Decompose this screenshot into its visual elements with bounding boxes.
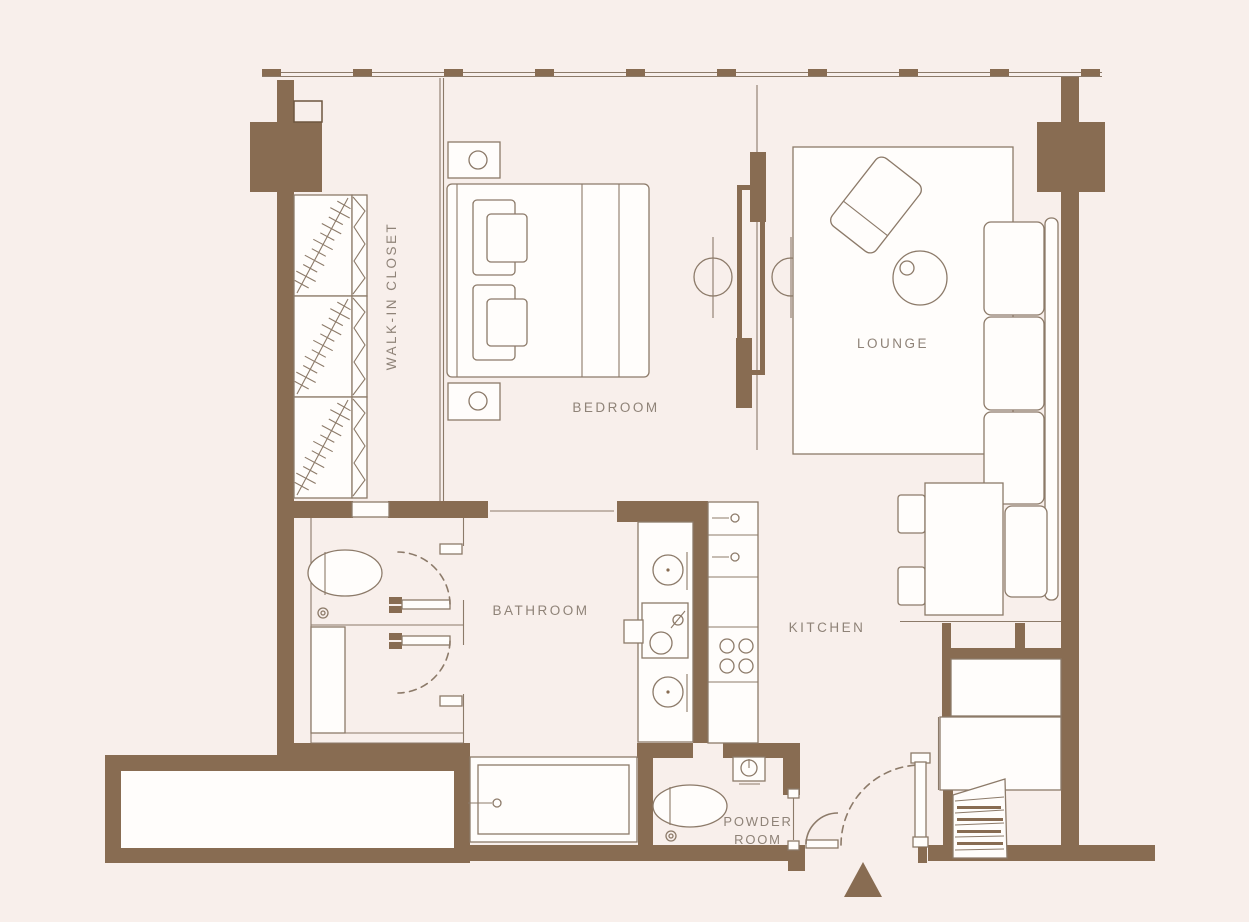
fridge bbox=[951, 659, 1061, 716]
floor-plan-canvas: WALK-IN CLOSET BEDROOM bbox=[0, 0, 1249, 922]
room-label-walk-in-closet: WALK-IN CLOSET bbox=[384, 222, 399, 371]
door-cap bbox=[913, 837, 928, 847]
room-label-powder-line2: ROOM bbox=[734, 832, 782, 847]
window-wall-north bbox=[262, 69, 1102, 77]
door-swing-arc bbox=[806, 813, 838, 844]
terrace-ledge bbox=[105, 755, 470, 863]
floor-drain-icon bbox=[666, 831, 676, 841]
sofa-cushion bbox=[984, 317, 1044, 410]
room-label-powder-line1: POWDER bbox=[723, 814, 792, 829]
pillow bbox=[487, 214, 527, 262]
dining-chair bbox=[898, 567, 925, 605]
door-leaf bbox=[915, 762, 926, 838]
dining-set bbox=[898, 483, 1003, 615]
wall-notch bbox=[294, 101, 322, 122]
sofa-cushion bbox=[1005, 506, 1047, 597]
room-label-bedroom: BEDROOM bbox=[572, 400, 659, 415]
door-hinge bbox=[788, 789, 799, 798]
dining-chair bbox=[898, 495, 925, 533]
bed bbox=[447, 184, 649, 377]
door-hinge bbox=[788, 841, 799, 850]
door-jamb bbox=[440, 544, 462, 554]
door-leaf bbox=[402, 600, 450, 609]
door-swing-arc bbox=[398, 552, 450, 604]
powder-sink bbox=[733, 757, 765, 784]
vanity-double-sink bbox=[624, 522, 693, 742]
bathtub bbox=[468, 757, 637, 842]
sofa-cushion bbox=[984, 222, 1044, 315]
door-leaf bbox=[402, 636, 450, 645]
entry-arrow-icon bbox=[844, 862, 882, 897]
wc-door bbox=[389, 552, 450, 613]
shower-door bbox=[389, 633, 450, 693]
dining-table bbox=[925, 483, 1003, 615]
walk-in-closet-wardrobe bbox=[294, 195, 367, 498]
pantry-fridge-niche bbox=[940, 659, 1061, 790]
side-table bbox=[893, 251, 947, 305]
door-swing-arc bbox=[841, 765, 921, 845]
lounge-furniture bbox=[793, 147, 1058, 615]
nightstand-top bbox=[448, 142, 500, 178]
shower-bench bbox=[311, 627, 345, 733]
closet-door-threshold bbox=[352, 502, 389, 517]
entry-door bbox=[841, 753, 930, 863]
floor-plan-page: WALK-IN CLOSET BEDROOM bbox=[0, 0, 1249, 922]
powder-toilet bbox=[653, 785, 727, 841]
door-swing-arc bbox=[398, 641, 450, 693]
door-jamb bbox=[440, 696, 462, 706]
room-label-kitchen: KITCHEN bbox=[789, 620, 866, 635]
pantry-cabinet bbox=[940, 717, 1061, 790]
shoe-cabinet bbox=[953, 779, 1007, 858]
room-label-bathroom: BATHROOM bbox=[493, 603, 590, 618]
door-leaf bbox=[806, 840, 838, 848]
floor-lamp-icon bbox=[694, 237, 732, 318]
room-label-lounge: LOUNGE bbox=[857, 336, 929, 351]
pillow bbox=[487, 299, 527, 346]
kitchen-counter bbox=[708, 502, 758, 743]
bedroom-furniture bbox=[447, 142, 649, 420]
floor-drain-icon bbox=[318, 608, 328, 618]
door-hinge bbox=[918, 847, 927, 863]
nightstand-bottom bbox=[448, 383, 500, 420]
powder-door bbox=[788, 789, 838, 850]
wall-niche bbox=[624, 620, 643, 643]
wc-toilet bbox=[308, 550, 382, 618]
